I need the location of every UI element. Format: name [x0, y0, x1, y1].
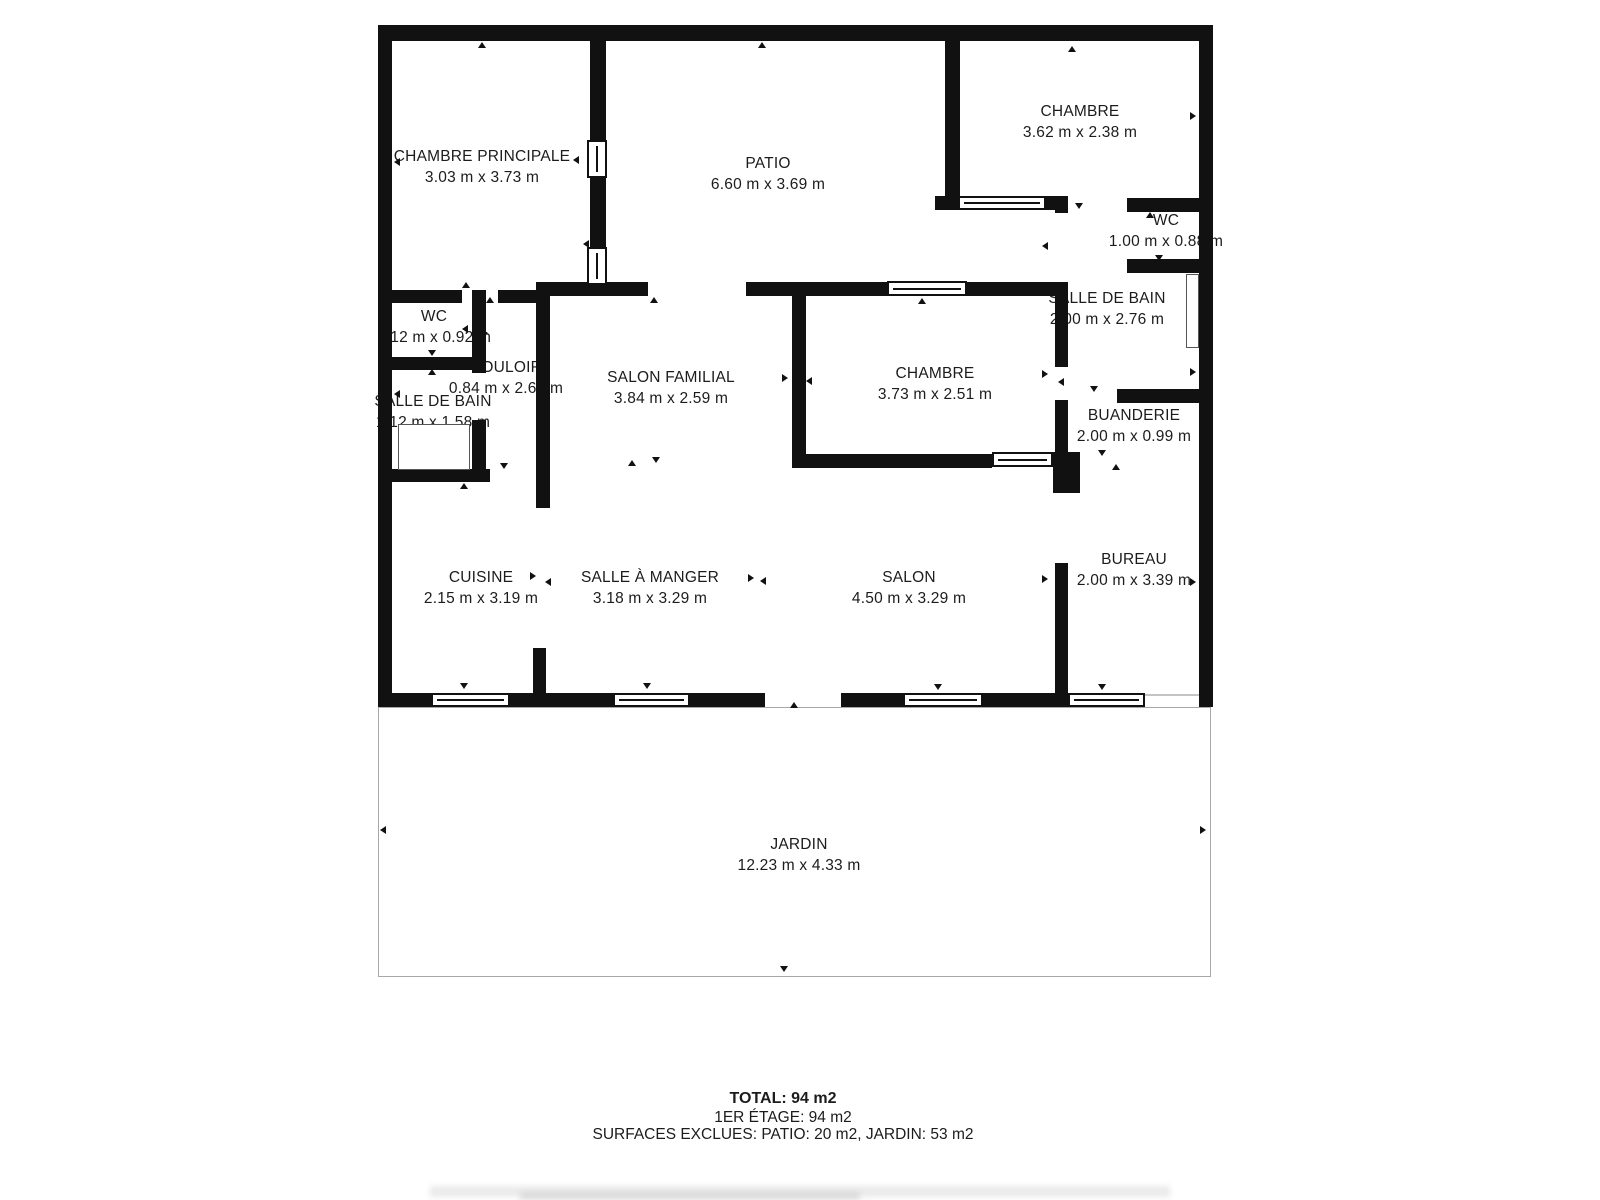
wall	[536, 282, 550, 508]
dim-tick-icon	[394, 158, 400, 166]
dim-tick-icon	[1042, 242, 1048, 250]
dim-tick-icon	[758, 42, 766, 48]
cutoff-watermark	[520, 1192, 860, 1200]
room-label-jardin: JARDIN 12.23 m x 4.33 m	[738, 834, 861, 876]
room-dims: 3.62 m x 2.38 m	[1023, 122, 1137, 143]
room-dims: 3.03 m x 3.73 m	[394, 167, 570, 188]
window	[1068, 693, 1145, 707]
window	[613, 693, 690, 707]
room-name: CHAMBRE	[1023, 101, 1137, 122]
dim-tick-icon	[1098, 684, 1106, 690]
dim-tick-icon	[643, 683, 651, 689]
dim-tick-icon	[1058, 378, 1064, 386]
room-name: BUANDERIE	[1077, 405, 1191, 426]
window	[431, 693, 510, 707]
dim-tick-icon	[924, 460, 932, 466]
wall	[510, 693, 613, 707]
room-dims: 3.73 m x 2.51 m	[878, 384, 992, 405]
window	[903, 693, 983, 707]
dim-tick-icon	[1190, 112, 1196, 120]
opening-line	[1145, 694, 1199, 696]
window	[587, 247, 607, 285]
dim-tick-icon	[1124, 396, 1132, 402]
dim-tick-icon	[790, 702, 798, 708]
room-label-bureau: BUREAU 2.00 m x 3.39 m	[1077, 549, 1191, 591]
dim-tick-icon	[1068, 46, 1076, 52]
room-dims: 2.00 m x 3.39 m	[1077, 570, 1191, 591]
summary-floor: 1ER ÉTAGE: 94 m2	[592, 1109, 973, 1126]
room-name: CUISINE	[424, 567, 538, 588]
dim-tick-icon	[652, 457, 660, 463]
room-label-salle-a-manger: SALLE À MANGER 3.18 m x 3.29 m	[581, 567, 719, 609]
wall	[841, 693, 903, 707]
dim-tick-icon	[1098, 450, 1106, 456]
wall	[533, 648, 546, 695]
room-label-buanderie: BUANDERIE 2.00 m x 0.99 m	[1077, 405, 1191, 447]
wall	[935, 196, 960, 210]
dim-tick-icon	[918, 298, 926, 304]
floor-plan: CHAMBRE PRINCIPALE 3.03 m x 3.73 m PATIO…	[0, 0, 1600, 1200]
wall	[792, 454, 992, 468]
wall	[1127, 259, 1203, 273]
dim-tick-icon	[1200, 826, 1206, 834]
wall	[792, 290, 806, 458]
wall	[378, 693, 431, 707]
dim-tick-icon	[583, 240, 589, 248]
dim-tick-icon	[1042, 575, 1048, 583]
window	[587, 140, 607, 178]
dim-tick-icon	[1042, 370, 1048, 378]
dim-tick-icon	[486, 297, 494, 303]
dim-tick-icon	[462, 282, 470, 288]
wall	[498, 290, 536, 303]
wall	[983, 693, 1068, 707]
room-dims: 12.23 m x 4.33 m	[738, 855, 861, 876]
dim-tick-icon	[952, 112, 958, 120]
window	[958, 196, 1046, 210]
wall	[967, 282, 1068, 296]
room-label-chambre-principale: CHAMBRE PRINCIPALE 3.03 m x 3.73 m	[394, 146, 570, 188]
wall	[392, 290, 462, 303]
dim-tick-icon	[545, 578, 551, 586]
window	[992, 452, 1053, 467]
room-dims: 2.00 m x 0.99 m	[1077, 426, 1191, 447]
wall	[378, 25, 1213, 41]
dim-tick-icon	[460, 683, 468, 689]
dim-tick-icon	[428, 350, 436, 356]
room-label-chambre-1: CHAMBRE 3.73 m x 2.51 m	[878, 363, 992, 405]
bath-fixture	[1186, 274, 1199, 348]
dim-tick-icon	[1146, 212, 1154, 218]
wall	[1199, 25, 1213, 707]
room-dims: 2.15 m x 3.19 m	[424, 588, 538, 609]
dim-tick-icon	[482, 329, 488, 337]
room-name: SALON	[852, 567, 966, 588]
dim-tick-icon	[1190, 368, 1196, 376]
dim-tick-icon	[760, 577, 766, 585]
room-name: BUREAU	[1077, 549, 1191, 570]
dim-tick-icon	[478, 42, 486, 48]
dim-tick-icon	[1155, 255, 1163, 261]
room-label-salon: SALON 4.50 m x 3.29 m	[852, 567, 966, 609]
room-dims: 3.18 m x 3.29 m	[581, 588, 719, 609]
dim-tick-icon	[380, 826, 386, 834]
summary-block: TOTAL: 94 m2 1ER ÉTAGE: 94 m2 SURFACES E…	[592, 1090, 973, 1143]
dim-tick-icon	[806, 377, 812, 385]
room-name: SALLE À MANGER	[581, 567, 719, 588]
dim-tick-icon	[782, 374, 788, 382]
dim-tick-icon	[748, 574, 754, 582]
dim-tick-icon	[934, 684, 942, 690]
dim-tick-icon	[760, 282, 768, 288]
summary-excluded: SURFACES EXCLUES: PATIO: 20 m2, JARDIN: …	[592, 1126, 973, 1143]
dim-tick-icon	[460, 483, 468, 489]
dim-tick-icon	[650, 297, 658, 303]
dim-tick-icon	[1075, 203, 1083, 209]
wall	[378, 25, 392, 707]
dim-tick-icon	[1090, 386, 1098, 392]
dim-tick-icon	[428, 369, 436, 375]
dim-tick-icon	[394, 390, 400, 398]
room-name: CHAMBRE PRINCIPALE	[394, 146, 570, 167]
bath-fixture	[398, 424, 470, 470]
dim-tick-icon	[1058, 578, 1064, 586]
room-dims: 3.84 m x 2.59 m	[607, 388, 735, 409]
dim-tick-icon	[1190, 578, 1196, 586]
dim-tick-icon	[500, 463, 508, 469]
wall	[392, 469, 490, 482]
room-label-salon-familial: SALON FAMILIAL 3.84 m x 2.59 m	[607, 367, 735, 409]
wall	[1053, 452, 1080, 493]
summary-total: TOTAL: 94 m2	[592, 1090, 973, 1107]
wall	[690, 693, 765, 707]
room-name: SALON FAMILIAL	[607, 367, 735, 388]
dim-tick-icon	[573, 156, 579, 164]
dim-tick-icon	[780, 966, 788, 972]
room-label-cuisine: CUISINE 2.15 m x 3.19 m	[424, 567, 538, 609]
wall	[1055, 196, 1068, 213]
dim-tick-icon	[1112, 464, 1120, 470]
dim-tick-icon	[462, 325, 468, 333]
dim-tick-icon	[530, 572, 536, 580]
room-label-chambre-2: CHAMBRE 3.62 m x 2.38 m	[1023, 101, 1137, 143]
room-dims: 4.50 m x 3.29 m	[852, 588, 966, 609]
room-dims: 6.60 m x 3.69 m	[711, 174, 825, 195]
wall	[1127, 198, 1199, 212]
dim-tick-icon	[628, 460, 636, 466]
room-name: JARDIN	[738, 834, 861, 855]
window	[887, 281, 967, 296]
room-name: CHAMBRE	[878, 363, 992, 384]
room-name: PATIO	[711, 153, 825, 174]
room-label-patio: PATIO 6.60 m x 3.69 m	[711, 153, 825, 195]
